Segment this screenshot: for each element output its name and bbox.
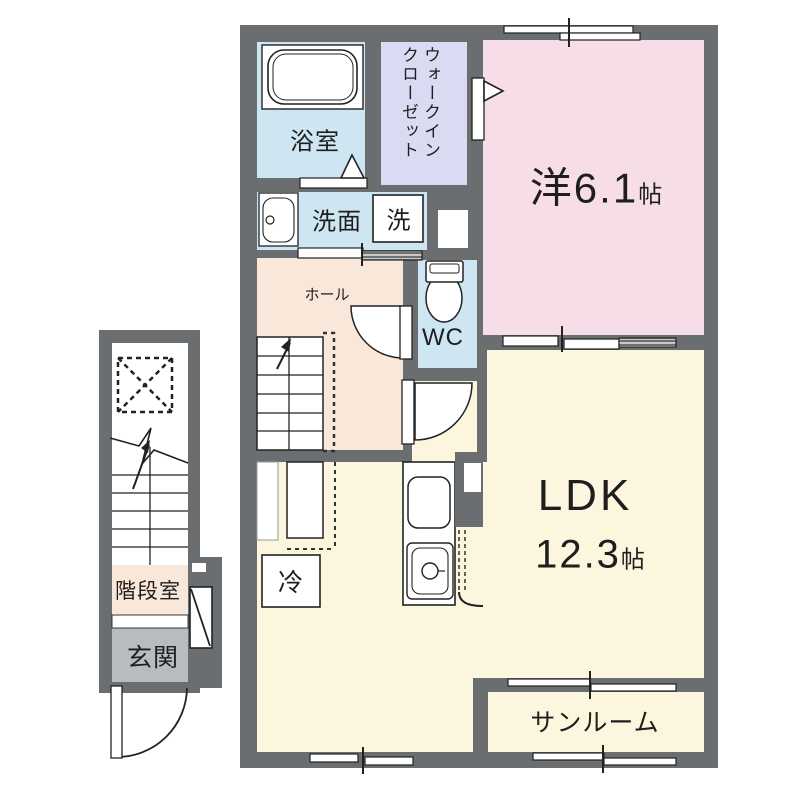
bathtub-icon bbox=[262, 45, 363, 109]
western-room-label: 洋6.1帖 bbox=[530, 155, 662, 216]
ldk-unit: 帖 bbox=[621, 547, 645, 574]
bathroom-label: 浴室 bbox=[290, 122, 340, 157]
ldk-size: 12.3 bbox=[535, 533, 621, 577]
ldk-label: LDK bbox=[538, 471, 633, 521]
annex-threshold bbox=[112, 615, 188, 628]
washroom-sliding-door-icon bbox=[298, 243, 422, 266]
ldk-size-label: 12.3帖 bbox=[535, 533, 645, 578]
western-room-unit: 帖 bbox=[638, 182, 662, 209]
annex-void-box bbox=[118, 358, 172, 412]
walk-in-closet-label-line2: クローゼット bbox=[399, 46, 418, 160]
kitchen-counter-outline bbox=[459, 530, 483, 606]
kitchen-wall-niche bbox=[464, 463, 481, 492]
ldk-door-icon bbox=[402, 380, 472, 444]
western-room-size: 洋6.1 bbox=[530, 165, 638, 212]
washing-machine-label: 洗 bbox=[387, 201, 412, 236]
annex-stairs-icon bbox=[110, 428, 188, 565]
stair-room-label: 階段室 bbox=[115, 575, 181, 605]
floor-plan: 浴室 ウォークイン クローゼット 洗面 洗 洋6.1帖 WC ホール LDK 1… bbox=[0, 0, 800, 800]
hall-label: ホール bbox=[304, 284, 349, 305]
ldk-west-door-icon bbox=[257, 462, 278, 540]
sunroom-top-window-icon bbox=[508, 671, 676, 699]
stairs-void-dashed-line bbox=[323, 333, 334, 451]
ldk-window-icon bbox=[310, 747, 413, 774]
walk-in-closet-label-line1: ウォークイン bbox=[421, 46, 440, 160]
wc-label: WC bbox=[422, 324, 464, 352]
vanity-sink-icon bbox=[259, 193, 298, 246]
annex-side-door-icon bbox=[190, 563, 212, 648]
entrance-label: 玄関 bbox=[127, 638, 179, 674]
toilet-icon bbox=[426, 261, 463, 322]
walk-in-closet-label: ウォークイン クローゼット bbox=[399, 46, 440, 160]
western-room-window-icon bbox=[504, 18, 640, 47]
bathroom-door-icon bbox=[300, 155, 367, 188]
sunroom-label: サンルーム bbox=[530, 703, 659, 739]
sunroom-bottom-window-icon bbox=[533, 745, 676, 773]
hall-stairs-icon bbox=[257, 337, 323, 450]
wc-door-icon bbox=[351, 306, 412, 359]
closet-door-icon bbox=[472, 78, 503, 140]
understair-storage-icon bbox=[287, 462, 335, 549]
kitchen-icon bbox=[403, 462, 455, 605]
refrigerator-label: 冷 bbox=[278, 563, 304, 599]
washroom-label: 洗面 bbox=[312, 202, 362, 237]
western-ldk-sliding-door-icon bbox=[503, 326, 676, 352]
entrance-door-icon bbox=[111, 686, 187, 758]
